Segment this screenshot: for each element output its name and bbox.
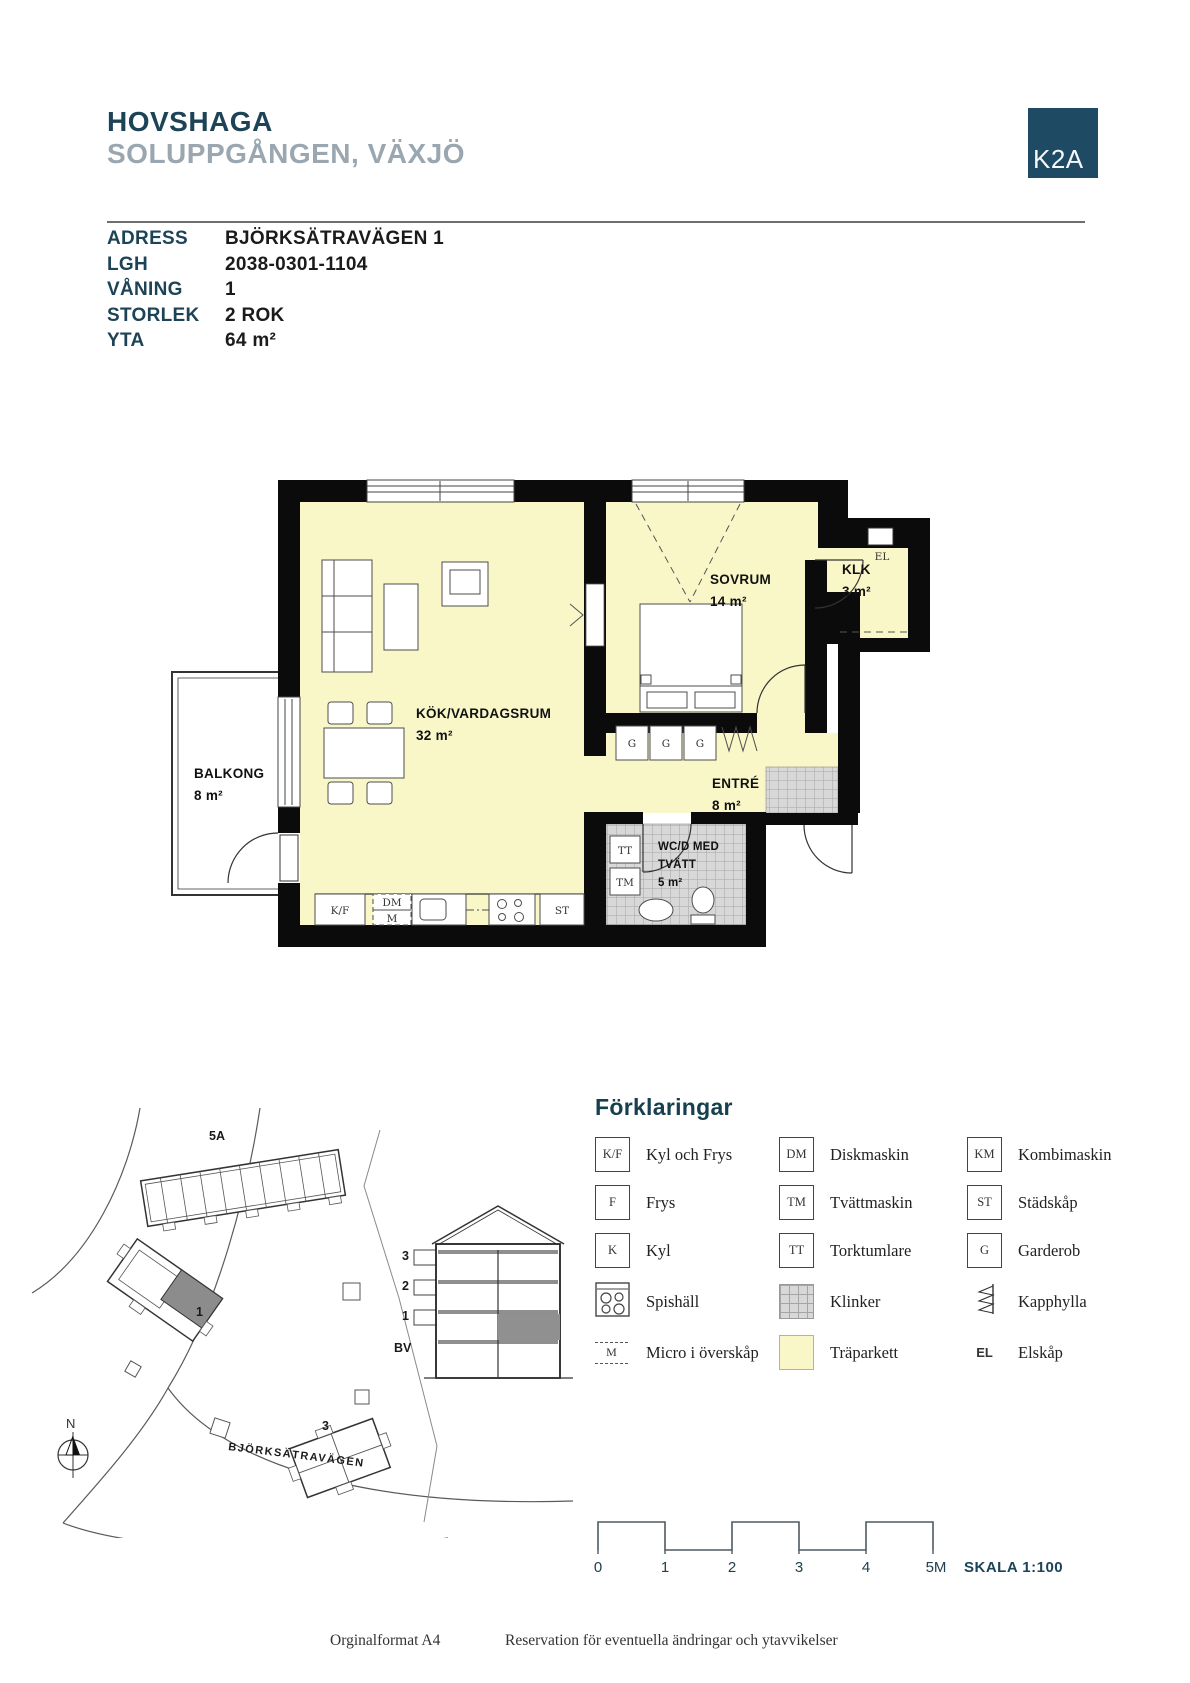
legend-label-kombimaskin: Kombimaskin bbox=[1018, 1145, 1133, 1165]
building-5a bbox=[141, 1150, 347, 1234]
legend-symbol-km: KM bbox=[967, 1137, 1002, 1172]
legend-label-micro: Micro i överskåp bbox=[646, 1343, 763, 1363]
room-label-kitchen-living: KÖK/VARDAGSRUM bbox=[416, 706, 551, 721]
info-label: STORLEK bbox=[107, 303, 225, 329]
floor-plan: G G G TT TM K/F DM M bbox=[166, 474, 936, 954]
k2a-logo-text: K2A bbox=[1033, 144, 1084, 175]
legend-label-elskap: Elskåp bbox=[1018, 1343, 1133, 1363]
page-subtitle: SOLUPPGÅNGEN, VÄXJÖ bbox=[107, 138, 465, 170]
scale-tick-0: 0 bbox=[594, 1559, 602, 1576]
room-area-kitchen-living: 32 m² bbox=[416, 728, 453, 743]
building-section: 3 2 1 BV bbox=[394, 1206, 573, 1378]
coffee-table bbox=[384, 584, 418, 650]
legend-grid: K/F Kyl och Frys DM Diskmaskin KM Kombim… bbox=[595, 1137, 1075, 1370]
room-area-balcony: 8 m² bbox=[194, 788, 223, 803]
window-balcony bbox=[278, 697, 300, 807]
footer-disclaimer: Reservation för eventuella ändringar och… bbox=[505, 1632, 838, 1650]
legend-symbol-st: ST bbox=[967, 1185, 1002, 1220]
el-marker: EL bbox=[875, 551, 890, 563]
legend-symbol-kf: K/F bbox=[595, 1137, 630, 1172]
legend-label-klinker: Klinker bbox=[830, 1292, 951, 1312]
el-cabinet bbox=[868, 528, 893, 545]
header-divider bbox=[107, 221, 1085, 223]
section-floor-bv: BV bbox=[394, 1341, 412, 1355]
room-label-bathroom-1: WC/D MED bbox=[658, 841, 719, 853]
klinker-legend-swatch bbox=[779, 1284, 814, 1319]
legend-label-tvattmaskin: Tvättmaskin bbox=[830, 1193, 951, 1213]
entrance-door-arc bbox=[804, 825, 852, 873]
coat-rack-legend-icon bbox=[967, 1281, 1002, 1322]
room-label-balcony: BALKONG bbox=[194, 766, 264, 781]
room-area-hall: 8 m² bbox=[712, 798, 741, 813]
scale-tick-2: 2 bbox=[728, 1559, 736, 1576]
wardrobe-marker: G bbox=[628, 738, 636, 750]
building-5a-label: 5A bbox=[209, 1129, 225, 1143]
info-label: ADRESS bbox=[107, 226, 225, 252]
wardrobe-marker: G bbox=[662, 738, 670, 750]
info-row-vaning: VÅNING 1 bbox=[107, 277, 444, 303]
room-area-bedroom: 14 m² bbox=[710, 594, 747, 609]
info-value: 64 m² bbox=[225, 328, 276, 354]
stove-icon bbox=[489, 894, 535, 925]
room-label-bathroom-2: TVÄTT bbox=[658, 858, 696, 871]
wardrobe-marker: G bbox=[696, 738, 704, 750]
info-value: 1 bbox=[225, 277, 236, 303]
micro-legend-icon: M bbox=[595, 1342, 628, 1364]
room-label-bedroom: SOVRUM bbox=[710, 572, 771, 587]
legend-label-spishall: Spishäll bbox=[646, 1292, 763, 1312]
legend-symbol-f: F bbox=[595, 1185, 630, 1220]
legend-label-torktumlare: Torktumlare bbox=[830, 1241, 951, 1261]
el-legend-symbol: EL bbox=[967, 1345, 1002, 1360]
wardrobes: G G G bbox=[616, 726, 716, 760]
washer-marker: TM bbox=[616, 877, 634, 889]
legend-symbol-k: K bbox=[595, 1233, 630, 1268]
toilet bbox=[691, 887, 715, 924]
section-floor-1: 1 bbox=[402, 1309, 409, 1323]
info-value: 2038-0301-1104 bbox=[225, 252, 368, 278]
legend-label-kapphylla: Kapphylla bbox=[1018, 1292, 1133, 1312]
dishwasher-marker: DM bbox=[382, 897, 401, 909]
legend-symbol-tt: TT bbox=[779, 1233, 814, 1268]
window-living bbox=[367, 480, 514, 502]
building-1 bbox=[96, 1234, 229, 1352]
bed bbox=[640, 604, 742, 712]
legend-symbol-g: G bbox=[967, 1233, 1002, 1268]
room-label-closet: KLK bbox=[842, 562, 871, 577]
legend-label-stadskap: Städskåp bbox=[1018, 1193, 1133, 1213]
room-area-closet: 3 m² bbox=[842, 584, 871, 599]
info-label: VÅNING bbox=[107, 277, 225, 303]
scale-tick-5: 5M bbox=[926, 1559, 947, 1576]
info-row-yta: YTA 64 m² bbox=[107, 328, 444, 354]
compass-icon: N bbox=[58, 1416, 88, 1478]
scale-bar: 0 1 2 3 4 5M SKALA 1:100 bbox=[592, 1500, 1112, 1580]
highlighted-floor-unit bbox=[498, 1314, 560, 1340]
building-1-label: 1 bbox=[196, 1305, 203, 1319]
legend-label-kyl-och-frys: Kyl och Frys bbox=[646, 1145, 763, 1165]
info-row-storlek: STORLEK 2 ROK bbox=[107, 303, 444, 329]
legend-label-garderob: Garderob bbox=[1018, 1241, 1133, 1261]
dryer-marker: TT bbox=[618, 845, 632, 857]
cleaning-closet-marker: ST bbox=[555, 905, 569, 917]
stove-legend-icon bbox=[595, 1282, 630, 1322]
legend-symbol-dm: DM bbox=[779, 1137, 814, 1172]
info-label: YTA bbox=[107, 328, 225, 354]
sofa bbox=[322, 560, 372, 672]
balcony-outline bbox=[172, 672, 278, 895]
parquet-legend-swatch bbox=[779, 1335, 814, 1370]
kitchen-counter: K/F DM M ST bbox=[315, 894, 584, 925]
k2a-logo: K2A bbox=[1028, 108, 1098, 178]
apartment-info: ADRESS BJÖRKSÄTRAVÄGEN 1 LGH 2038-0301-1… bbox=[107, 226, 444, 354]
page-title: HOVSHAGA bbox=[107, 106, 273, 138]
legend-label-frys: Frys bbox=[646, 1193, 763, 1213]
info-value: 2 ROK bbox=[225, 303, 285, 329]
compass-n-label: N bbox=[66, 1416, 75, 1431]
micro-marker: M bbox=[387, 913, 398, 925]
info-value: BJÖRKSÄTRAVÄGEN 1 bbox=[225, 226, 444, 252]
legend-symbol-tm: TM bbox=[779, 1185, 814, 1220]
section-floor-3: 3 bbox=[402, 1249, 409, 1263]
scale-tick-4: 4 bbox=[862, 1559, 870, 1576]
balcony-door-arc bbox=[228, 833, 278, 883]
section-floor-2: 2 bbox=[402, 1279, 409, 1293]
legend-label-diskmaskin: Diskmaskin bbox=[830, 1145, 951, 1165]
washbasin bbox=[639, 899, 673, 921]
info-row-adress: ADRESS BJÖRKSÄTRAVÄGEN 1 bbox=[107, 226, 444, 252]
legend: Förklaringar K/F Kyl och Frys DM Diskmas… bbox=[595, 1094, 1075, 1370]
scale-label: SKALA 1:100 bbox=[964, 1559, 1063, 1576]
footer-format: Orginalformat A4 bbox=[330, 1632, 440, 1650]
room-label-hall: ENTRÉ bbox=[712, 776, 759, 791]
legend-label-traparkett: Träparkett bbox=[830, 1343, 951, 1363]
armchair bbox=[442, 562, 488, 606]
fridge-freezer-marker: K/F bbox=[331, 905, 350, 917]
scale-tick-3: 3 bbox=[795, 1559, 803, 1576]
legend-title: Förklaringar bbox=[595, 1094, 1075, 1121]
building-3-label: 3 bbox=[322, 1419, 329, 1433]
site-plan: 5A 1 3 N BJÖRKSÄTRAVÄGEN 3 2 bbox=[28, 1108, 578, 1538]
room-area-bathroom: 5 m² bbox=[658, 877, 682, 889]
scale-tick-1: 1 bbox=[661, 1559, 669, 1576]
info-row-lgh: LGH 2038-0301-1104 bbox=[107, 252, 444, 278]
info-label: LGH bbox=[107, 252, 225, 278]
legend-label-kyl: Kyl bbox=[646, 1241, 763, 1261]
